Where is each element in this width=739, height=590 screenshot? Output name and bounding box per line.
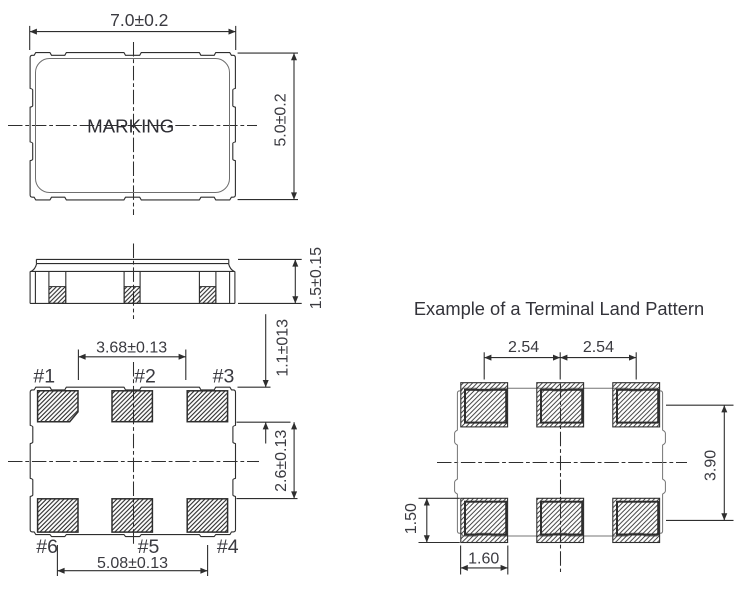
svg-text:2.54: 2.54	[508, 339, 539, 356]
svg-text:#6: #6	[36, 536, 58, 558]
svg-text:3.68±0.13: 3.68±0.13	[96, 339, 167, 356]
svg-text:1.1±013: 1.1±013	[274, 319, 291, 377]
svg-text:#1: #1	[33, 365, 55, 387]
svg-text:Example of a Terminal Land Pat: Example of a Terminal Land Pattern	[414, 298, 704, 319]
svg-text:#3: #3	[213, 365, 235, 387]
svg-text:5.0±0.2: 5.0±0.2	[273, 93, 290, 146]
svg-text:2.6±0.13: 2.6±0.13	[273, 430, 290, 492]
svg-text:MARKING: MARKING	[87, 116, 174, 137]
svg-text:1.5±0.15: 1.5±0.15	[308, 247, 325, 309]
svg-text:3.90: 3.90	[702, 450, 719, 481]
svg-text:2.54: 2.54	[583, 339, 614, 356]
svg-text:1.50: 1.50	[403, 503, 420, 534]
svg-text:#4: #4	[217, 536, 239, 558]
svg-text:7.0±0.2: 7.0±0.2	[110, 10, 168, 30]
svg-text:#2: #2	[134, 365, 156, 387]
svg-text:1.60: 1.60	[468, 550, 499, 567]
svg-text:5.08±0.13: 5.08±0.13	[97, 555, 168, 572]
